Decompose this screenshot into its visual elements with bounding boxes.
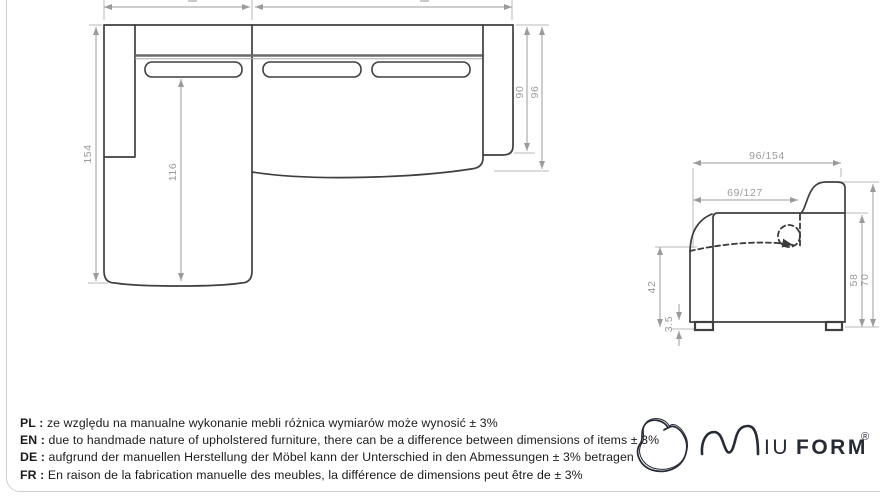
dim-label-3-5: 3.5 <box>663 316 675 332</box>
disclaimer-text: aufgrund der manuellen Herstellung der M… <box>49 450 634 464</box>
cropped-dimension-label <box>420 0 429 2</box>
dimension-chaise-inner: 116 <box>167 79 181 281</box>
mechanism-pivot-dashed-circle <box>778 225 800 247</box>
back-cushion <box>263 62 361 77</box>
dimension-total-height: 70 <box>859 184 873 327</box>
disclaimer-line-en: EN : due to handmade nature of upholster… <box>20 432 659 449</box>
dim-label-154: 154 <box>82 144 94 163</box>
dimension-foot-height: 3.5 <box>663 304 679 346</box>
dim-label-90: 90 <box>514 86 526 99</box>
seat-level-dashed-line <box>690 243 793 251</box>
sofa-side-view-drawing: 96/154 69/127 42 3.5 58 70 <box>640 130 880 360</box>
dim-label-70: 70 <box>859 274 871 287</box>
dimension-width-inner: 69/127 <box>693 187 798 200</box>
disclaimer-line-pl: PL : ze względu na manualne wykonanie me… <box>20 415 659 432</box>
miuform-logo: IU FORM ® <box>628 412 873 492</box>
disclaimer-lang-label: EN : <box>20 433 45 447</box>
disclaimer-lang-label: DE : <box>20 450 45 464</box>
sofa-top-view-drawing: 154 116 90 96 <box>0 0 560 340</box>
disclaimer-text: En raison de la fabrication manuelle des… <box>48 468 583 482</box>
disclaimer-lang-label: PL : <box>20 416 43 430</box>
dim-label-96: 96 <box>529 86 541 99</box>
dim-label-42: 42 <box>646 281 658 294</box>
logo-letters-regular: IU <box>764 436 790 459</box>
back-cushion <box>145 62 242 77</box>
dimension-depth-total-left: 154 <box>82 27 96 281</box>
registered-trademark-symbol: ® <box>861 431 869 443</box>
dimension-back-height: 58 <box>848 215 862 327</box>
disclaimer-text: ze względu na manualne wykonanie mebli r… <box>47 416 498 430</box>
dim-label-96-154: 96/154 <box>749 150 785 162</box>
disclaimer-line-fr: FR : En raison de la fabrication manuell… <box>20 467 659 484</box>
cropped-dimension-label <box>188 0 197 2</box>
dim-label-69-127: 69/127 <box>727 187 763 199</box>
disclaimer-line-de: DE : aufgrund der manuellen Herstellung … <box>20 449 659 466</box>
top-view-extension-lines <box>88 0 549 283</box>
logo-letters-bold: FORM <box>796 436 868 459</box>
dimension-seat-height: 42 <box>646 247 660 327</box>
back-cushion <box>372 62 470 77</box>
dimension-seat-right: 90 <box>514 27 527 151</box>
disclaimer-lang-label: FR : <box>20 468 44 482</box>
sofa-foot <box>695 322 713 330</box>
dim-label-116: 116 <box>167 163 179 182</box>
dimension-depth-total-right: 96 <box>529 27 542 169</box>
logo-heart-icon <box>638 418 688 471</box>
dimension-width-total: 96/154 <box>693 150 841 163</box>
sofa-foot <box>826 322 842 330</box>
sofa-side-outline <box>690 182 845 330</box>
tolerance-disclaimer: PL : ze względu na manualne wykonanie me… <box>20 415 659 484</box>
disclaimer-text: due to handmade nature of upholstered fu… <box>49 433 660 447</box>
sofa-plan-outline <box>104 25 513 286</box>
logo-m-icon <box>702 426 758 454</box>
